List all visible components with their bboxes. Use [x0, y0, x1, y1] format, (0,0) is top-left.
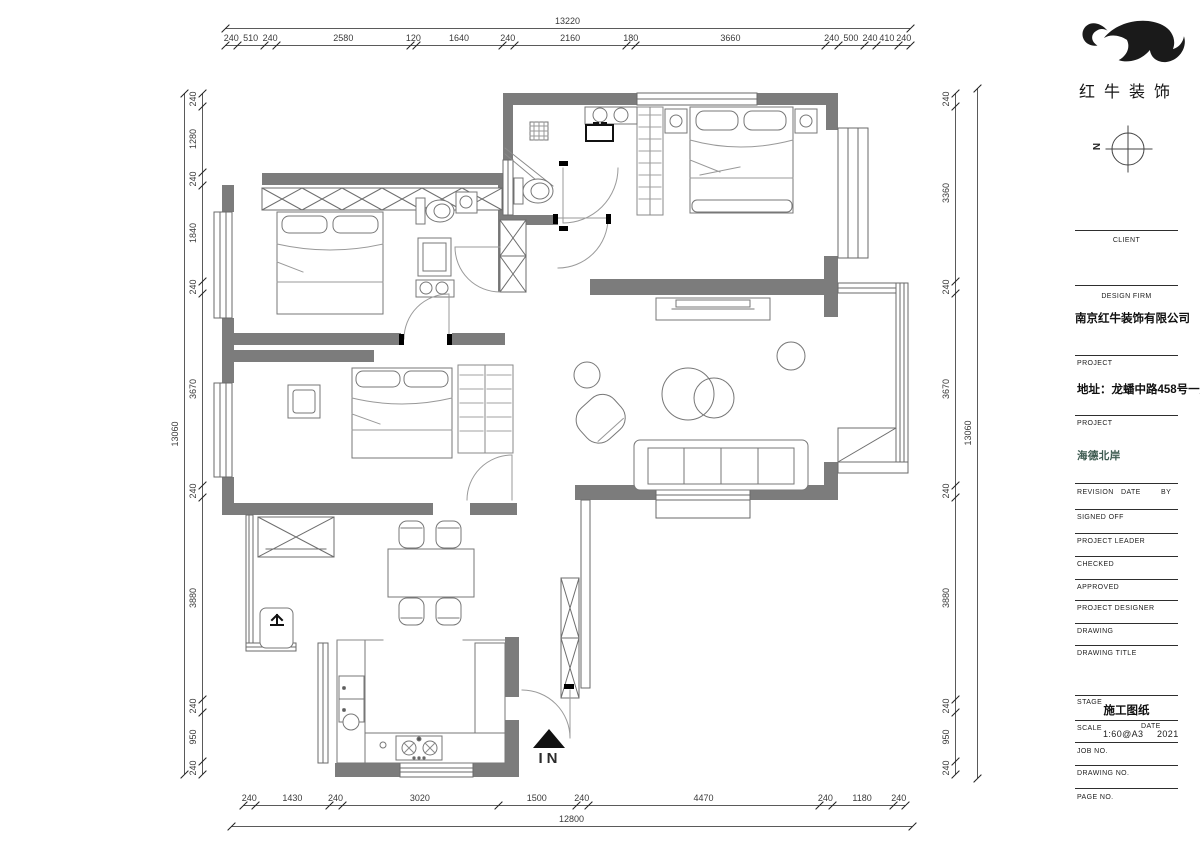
laundry [260, 608, 293, 648]
tv-cabinet [656, 298, 770, 320]
tb-stage-value: 施工图纸 [1075, 702, 1178, 718]
tb-project1-label: PROJECT [1077, 360, 1112, 367]
bathroom-top [505, 107, 637, 204]
tb-by-label: BY [1161, 489, 1171, 496]
title-block: CLIENT DESIGN FIRM 南京红牛装饰有限公司 PROJECT 地址… [1075, 0, 1178, 848]
bed-bedroom2 [288, 368, 452, 458]
sofa [634, 440, 808, 490]
tb-drawing-label: DRAWING [1077, 628, 1113, 635]
kitchen [337, 640, 505, 763]
tb-drawing-title-label: DRAWING TITLE [1077, 650, 1137, 657]
tb-revision-label: REVISION [1077, 489, 1114, 496]
tb-scale-label: SCALE [1077, 725, 1102, 732]
bed-master [665, 107, 817, 213]
tb-client-label: CLIENT [1075, 237, 1178, 244]
dining-set [388, 521, 474, 625]
tb-job-no-label: JOB NO. [1077, 748, 1108, 755]
tb-project2-value: 海德北岸 [1077, 448, 1121, 463]
tb-drawing-no-label: DRAWING NO. [1077, 770, 1129, 777]
entrance-arrow [533, 729, 565, 748]
entrance-in-label: IN [531, 750, 569, 767]
bed-bedroom1 [277, 212, 383, 314]
tb-checked-label: CHECKED [1077, 561, 1114, 568]
tb-project2-label: PROJECT [1077, 420, 1112, 427]
floorplan-sheet: { "logo": { "brand_name": "红牛装饰" }, "com… [0, 0, 1200, 848]
floorplan-drawing [0, 0, 1200, 848]
armchair [570, 388, 632, 450]
tb-design-firm-value: 南京红牛装饰有限公司 [1075, 310, 1178, 326]
tb-date-value: 2021 [1157, 729, 1179, 739]
tb-project1-value: 地址：龙蟠中路458号一层 [1077, 381, 1200, 397]
tb-date-label: DATE [1121, 489, 1141, 496]
tb-signed-off-label: SIGNED OFF [1077, 514, 1124, 521]
tb-page-no-label: PAGE NO. [1077, 794, 1114, 801]
tb-project-leader-label: PROJECT LEADER [1077, 538, 1145, 545]
tb-approved-label: APPROVED [1077, 584, 1119, 591]
bathroom-mid [416, 192, 477, 297]
tb-project-designer-label: PROJECT DESIGNER [1077, 605, 1154, 612]
tb-scale-value: 1:60@A3 [1103, 729, 1143, 739]
tb-design-firm-label: DESIGN FIRM [1075, 293, 1178, 300]
